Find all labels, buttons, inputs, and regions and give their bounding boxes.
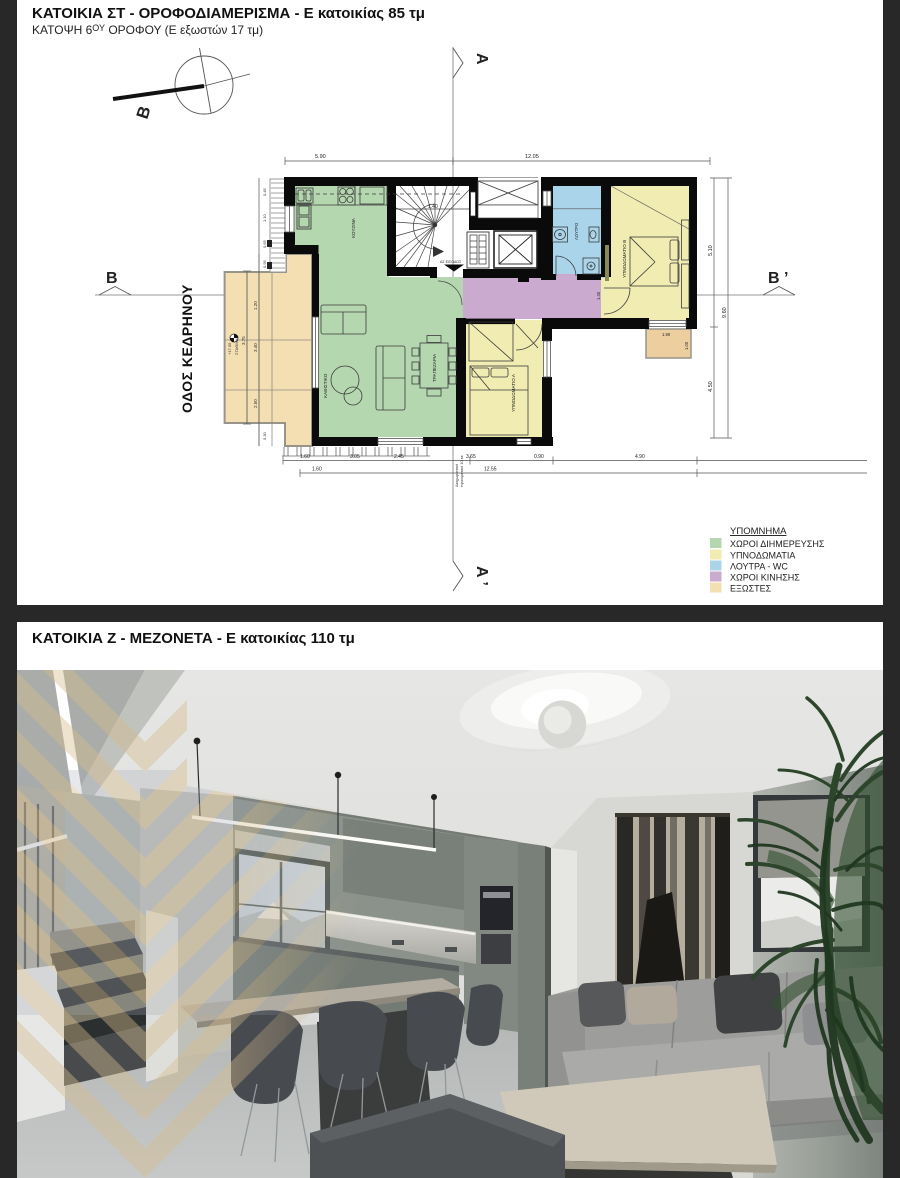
svg-text:5.90: 5.90 [315,154,326,160]
svg-text:ΚΟΥΖΙΝΑ: ΚΟΥΖΙΝΑ [351,217,356,238]
svg-text:1.90: 1.90 [662,332,671,337]
svg-text:ΟΔΟΣ ΚΕΔΡΗΝΟΥ: ΟΔΟΣ ΚΕΔΡΗΝΟΥ [179,284,195,413]
svg-text:3.75: 3.75 [241,336,246,345]
svg-text:5.10: 5.10 [708,245,714,256]
svg-text:ΛΟΥΤΡΟ: ΛΟΥΤΡΟ [574,222,579,240]
svg-text:ΥΠΝΟΔΩΜΑΤΙΟ Β: ΥΠΝΟΔΩΜΑΤΙΟ Β [622,240,627,278]
svg-text:3.05: 3.05 [350,454,360,460]
svg-text:προαιρετικό 10 εκ: προαιρετικό 10 εκ [459,455,464,487]
svg-text:ΤΡΑΠΕΖΑΡΙΑ: ΤΡΑΠΕΖΑΡΙΑ [432,353,437,382]
svg-text:4.90: 4.90 [635,454,645,460]
svg-text:12.55: 12.55 [484,467,497,473]
svg-text:0.90: 0.90 [534,454,544,460]
svg-text:ΧΩΡΟΙ ΔΙΗΜΕΡΕΥΣΗΣ: ΧΩΡΟΙ ΔΙΗΜΕΡΕΥΣΗΣ [730,539,825,549]
svg-text:1.60: 1.60 [312,467,322,473]
svg-text:1.60: 1.60 [300,454,310,460]
svg-text:ΣΤΑΘΜΗ: ΣΤΑΘΜΗ [234,338,239,355]
svg-text:1.00: 1.00 [684,341,689,350]
svg-text:+17.05: +17.05 [227,342,232,355]
svg-text:1.40: 1.40 [428,204,438,210]
svg-text:A ’: A ’ [473,566,490,586]
svg-text:B: B [133,104,155,122]
svg-text:1.40: 1.40 [596,291,601,300]
svg-text:B ’: B ’ [768,270,788,287]
svg-text:4.50: 4.50 [708,381,714,392]
svg-text:0.65: 0.65 [262,239,267,248]
svg-text:B: B [106,270,118,287]
svg-text:1.20: 1.20 [253,301,258,310]
svg-text:ΥΠΝΟΔΩΜΑΤΙΟ Α: ΥΠΝΟΔΩΜΑΤΙΟ Α [511,373,516,412]
svg-text:ΚΑΘΙΣΤΙΚΟ: ΚΑΘΙΣΤΙΚΟ [323,373,328,398]
svg-text:1.10: 1.10 [262,213,267,222]
svg-text:ΛΟΥΤΡΑ - WC: ΛΟΥΤΡΑ - WC [730,562,788,572]
svg-text:0.45: 0.45 [262,187,267,196]
svg-text:ΥΠΝΟΔΩΜΑΤΙΑ: ΥΠΝΟΔΩΜΑΤΙΑ [730,551,795,561]
svg-text:2.50: 2.50 [253,399,258,408]
svg-text:12.05: 12.05 [525,154,539,160]
svg-text:A: A [473,53,490,65]
svg-text:3.40: 3.40 [253,343,258,352]
svg-text:0.95: 0.95 [262,259,267,268]
svg-text:9.60: 9.60 [722,307,728,318]
svg-text:ΕΞΩΣΤΕΣ: ΕΞΩΣΤΕΣ [730,584,772,594]
svg-text:0.30: 0.30 [262,431,267,440]
svg-text:3.65: 3.65 [466,454,476,460]
svg-text:ΧΩΡΟΙ ΚΙΝΗΣΗΣ: ΧΩΡΟΙ ΚΙΝΗΣΗΣ [730,573,800,583]
svg-text:2.45: 2.45 [394,454,404,460]
svg-text:ΑΣ ΕΙΣΟΔΟΣ: ΑΣ ΕΙΣΟΔΟΣ [440,260,462,264]
svg-text:ΥΠΟΜΝΗΜΑ: ΥΠΟΜΝΗΜΑ [730,526,787,537]
